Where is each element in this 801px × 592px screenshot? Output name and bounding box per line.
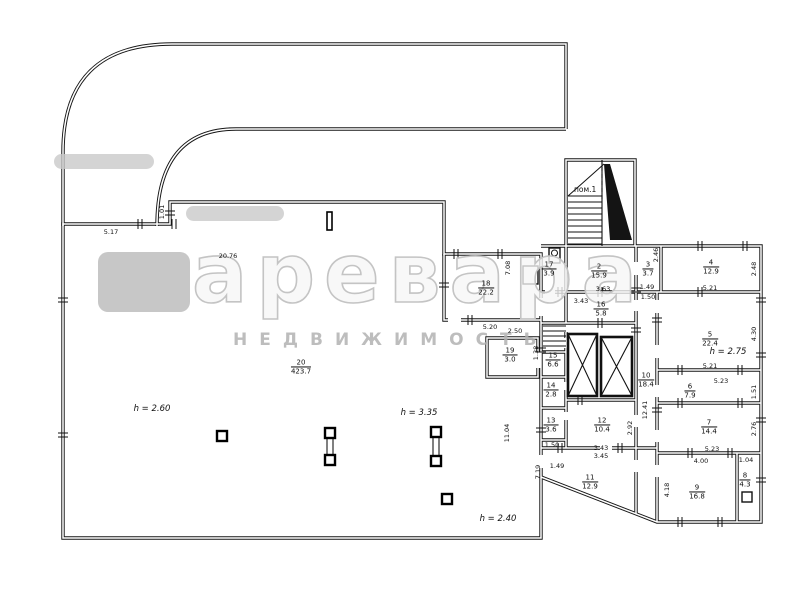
- stair-flight-arrow: [604, 164, 632, 240]
- floor-plan: аревара НЕДВИЖИМОСТЬ пом.1 20423.7173.92…: [0, 0, 801, 592]
- columns: [217, 212, 452, 504]
- walls-drawing: [0, 0, 801, 592]
- elevator-shafts: [568, 334, 632, 396]
